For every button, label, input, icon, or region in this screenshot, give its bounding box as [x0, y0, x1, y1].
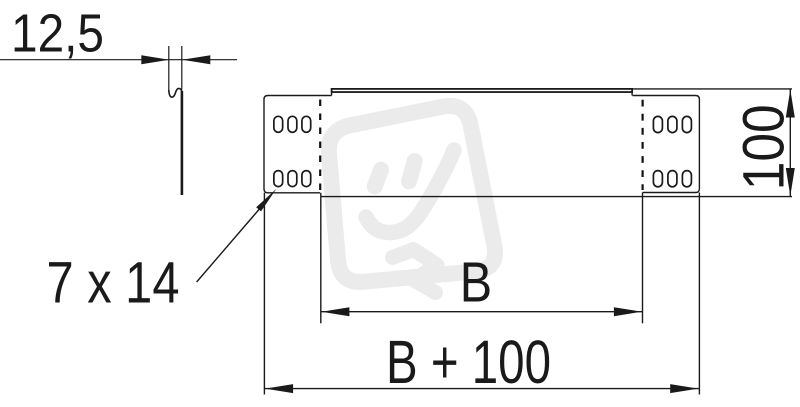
svg-text:12,5: 12,5 — [11, 5, 104, 64]
svg-text:7 x 14: 7 x 14 — [47, 251, 180, 316]
svg-text:B + 100: B + 100 — [386, 328, 551, 397]
svg-text:B: B — [460, 252, 492, 315]
svg-text:100: 100 — [731, 104, 796, 190]
